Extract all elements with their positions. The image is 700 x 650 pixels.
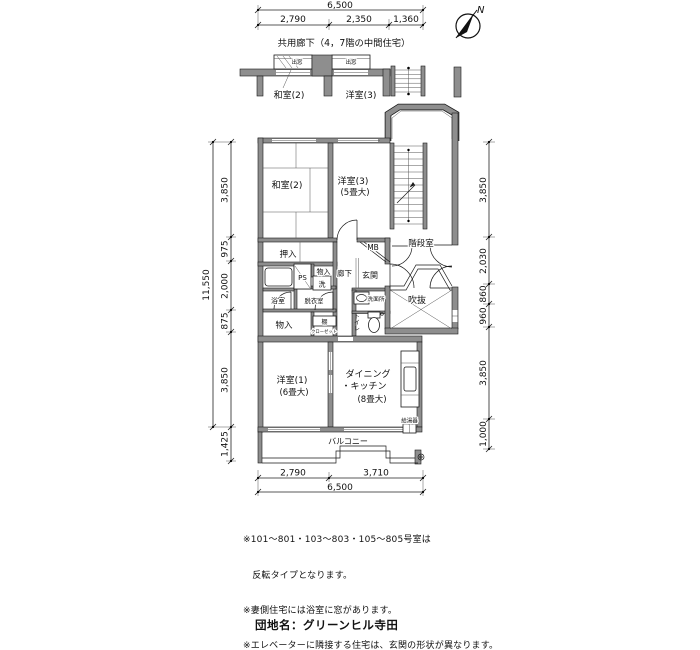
room-label-dk3: (8畳大) <box>357 394 386 405</box>
dim-bottom-total: 6,500 <box>327 483 353 493</box>
compass-north-label: N <box>477 5 485 16</box>
room-label-tana: 棚 <box>321 318 327 326</box>
dims-bottom: 2,790 3,710 6,500 <box>255 469 426 497</box>
dim-right-seg1: 3,850 <box>479 177 489 203</box>
room-label-laundry: 洗 <box>319 280 326 289</box>
dims-top: 6,500 2,790 2,350 1,360 <box>255 1 426 30</box>
dim-bottom-seg2: 3,710 <box>363 469 389 479</box>
dim-left-seg1: 3,850 <box>221 177 231 203</box>
stair-up-arrow <box>397 185 415 203</box>
dim-left-seg4: 875 <box>221 312 231 329</box>
dims-right: 3,850 2,030 860 960 3,850 1,000 <box>479 139 495 452</box>
dim-left-total: 11,550 <box>202 269 212 301</box>
note-line: ※101～801・103～803・105～805号室は <box>243 535 508 547</box>
info-danchi-name: 団地名：グリーンヒル寺田 <box>255 620 398 632</box>
dim-right-seg3: 860 <box>479 285 489 302</box>
dim-bottom-seg1: 2,790 <box>280 469 306 479</box>
note-line: 反転タイプとなります。 <box>243 571 508 583</box>
dim-top-seg3: 1,360 <box>393 15 419 25</box>
compass: N <box>456 5 485 38</box>
room-label-monoire-lower: 物入 <box>275 320 293 331</box>
dim-left-seg5: 3,850 <box>221 367 231 393</box>
room-label-closet: クローゼット <box>311 328 337 335</box>
dim-right-seg4: 960 <box>479 307 489 324</box>
room-label-monoire-upper: 物入 <box>317 267 331 276</box>
room-label-yoshitsu1: 洋室(1) <box>277 374 308 386</box>
room-label-ps: PS <box>298 274 307 282</box>
dim-top-total: 6,500 <box>327 1 353 11</box>
room-label-mb: MB <box>367 243 379 252</box>
floor-plan-page: 6,500 2,790 2,350 1,360 N 共用廊下（4，7階の中間住宅… <box>0 0 700 650</box>
room-label-yoshitsu3: 洋室(3) <box>338 175 369 187</box>
room-label-fukinuke: 吹抜 <box>408 294 426 306</box>
room-label-yokushitsu: 浴室 <box>271 296 285 305</box>
dim-top-seg2: 2,350 <box>346 15 372 25</box>
room-label-rouka: 廊下 <box>337 268 352 278</box>
room-label-senmenjo: 洗面所 <box>367 295 385 303</box>
section-room-right-label: 洋室(3) <box>346 89 377 101</box>
info-block: 団地名：グリーンヒル寺田 型 式：3DK タイプ：G1 図面No：20337 <box>255 597 398 650</box>
corridor-section-strip: 出窓 出窓 和室(2) 洋室(3) <box>240 55 461 101</box>
dim-top-seg1: 2,790 <box>280 15 306 25</box>
room-label-oshiire: 押入 <box>279 249 297 260</box>
room-label-dk2: ・キッチン <box>341 381 386 392</box>
kitchen-sink <box>404 367 416 391</box>
room-label-datsuishitsu: 脱衣室 <box>305 296 324 305</box>
dim-right-seg2: 2,030 <box>479 248 489 274</box>
room-label-yoshitsu1-size: (6畳大) <box>279 387 308 398</box>
bay-window-right-label: 出窓 <box>345 58 357 66</box>
room-label-yoshitsu3-size: (5畳大) <box>340 187 369 198</box>
dim-left-seg2: 975 <box>221 240 231 257</box>
toilet-bowl <box>369 318 380 333</box>
header-note: 共用廊下（4，7階の中間住宅） <box>278 37 411 49</box>
bathtub <box>265 268 292 286</box>
dim-left-seg6: 1,425 <box>221 431 231 457</box>
dims-left: 11,550 3,850 975 2,000 875 3,850 1,425 <box>202 139 236 464</box>
staircase <box>390 143 427 229</box>
room-label-kyutoki: 給湯器 <box>401 417 418 425</box>
section-room-left-label: 和室(2) <box>274 89 305 101</box>
room-label-balcony: バルコニー <box>328 437 368 446</box>
room-label-washitsu2: 和室(2) <box>272 179 303 191</box>
corridor-railing <box>391 66 425 96</box>
dim-right-seg6: 1,000 <box>479 421 489 447</box>
room-label-kaidanshitsu: 階段室 <box>408 238 434 249</box>
dim-left-seg3: 2,000 <box>221 273 231 299</box>
dim-right-seg5: 3,850 <box>479 360 489 386</box>
bay-window-left-label: 出窓 <box>291 58 303 66</box>
room-label-dk1: ダイニング <box>345 368 390 380</box>
stairwell-top-bay <box>388 107 456 141</box>
room-label-genkan: 玄関 <box>362 270 378 280</box>
room-label-toire: トイレ <box>353 313 360 331</box>
